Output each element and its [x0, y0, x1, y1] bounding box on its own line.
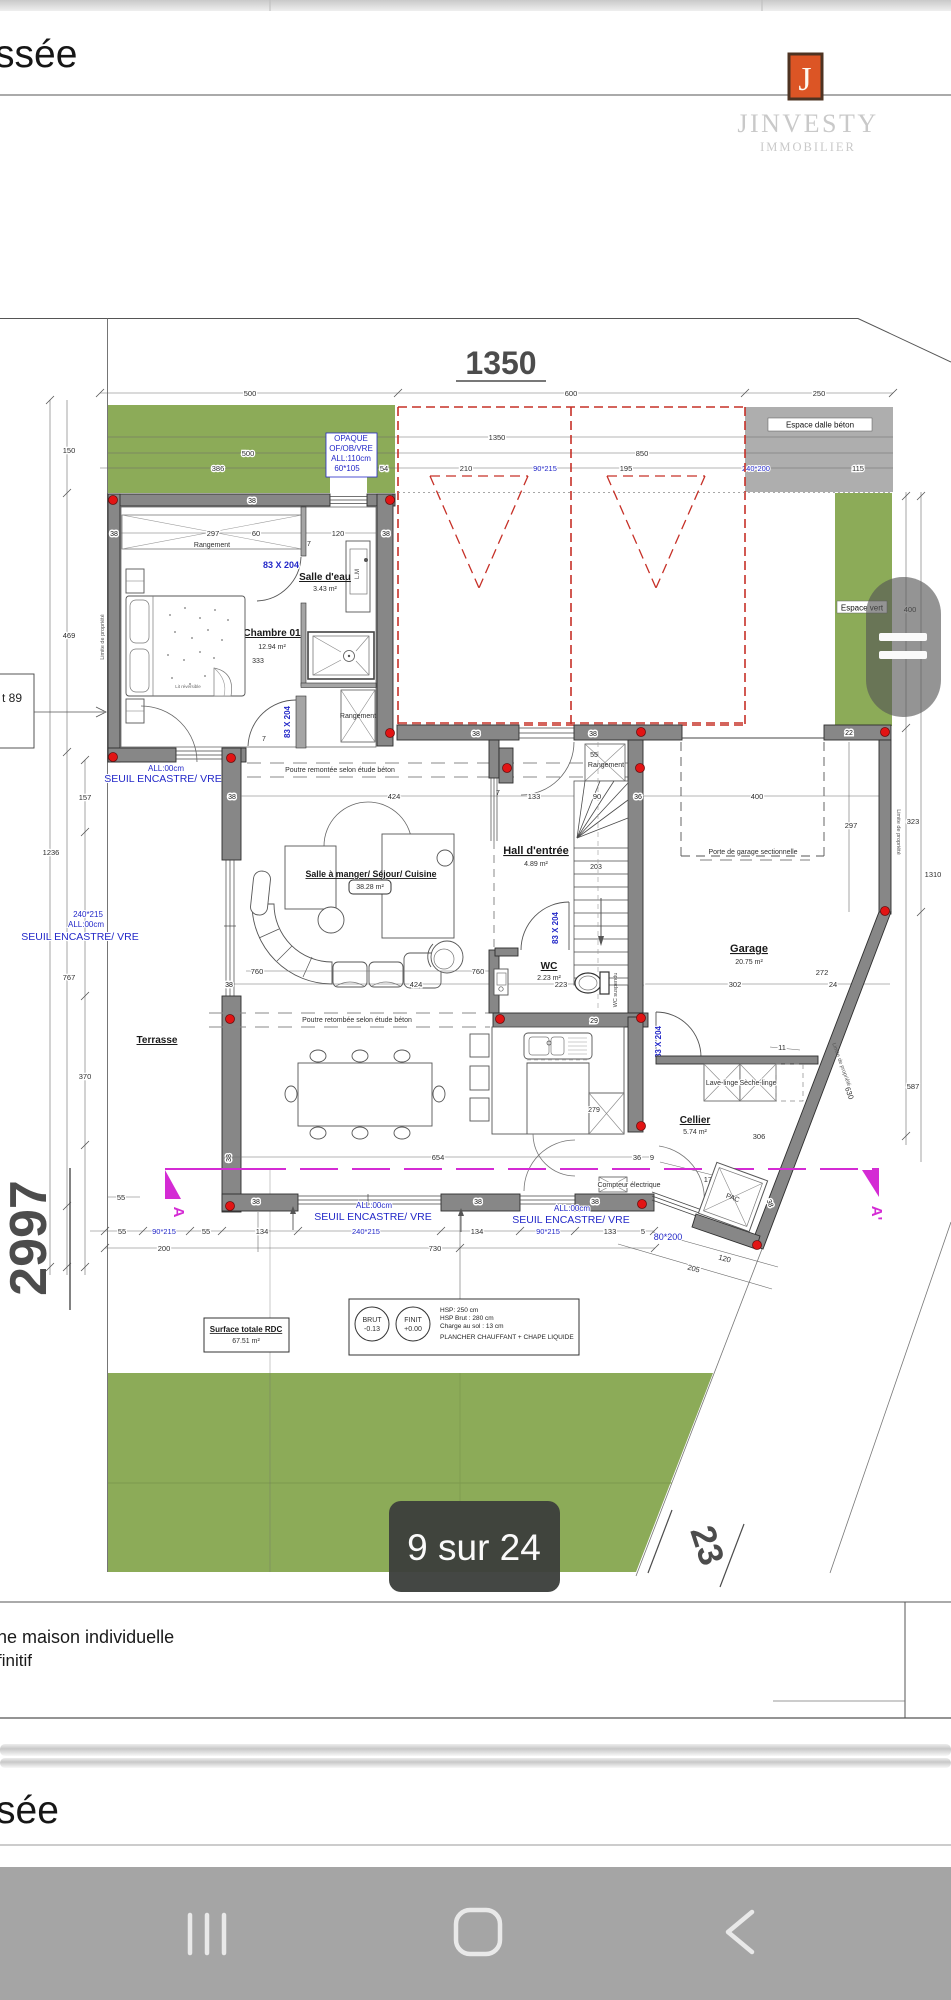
- svg-text:272: 272: [816, 968, 829, 977]
- svg-text:11: 11: [778, 1043, 786, 1052]
- svg-text:38: 38: [591, 1199, 599, 1206]
- svg-text:55: 55: [202, 1227, 210, 1236]
- svg-text:500: 500: [242, 449, 255, 458]
- svg-text:Poutre remontée selon étude bé: Poutre remontée selon étude béton: [285, 767, 395, 774]
- svg-text:157: 157: [79, 793, 92, 802]
- svg-text:115: 115: [852, 464, 864, 473]
- svg-text:500: 500: [244, 389, 257, 398]
- svg-text:Porte de garage sectionnelle: Porte de garage sectionnelle: [708, 849, 797, 856]
- svg-text:210: 210: [460, 464, 473, 473]
- svg-text:A: A: [170, 1207, 187, 1218]
- svg-text:370: 370: [79, 1072, 92, 1081]
- svg-text:29: 29: [590, 1018, 598, 1025]
- svg-text:5: 5: [641, 1227, 645, 1236]
- svg-text:7: 7: [307, 541, 311, 548]
- svg-text:ALL:00cm: ALL:00cm: [68, 920, 104, 929]
- svg-text:7: 7: [496, 790, 500, 797]
- svg-text:654: 654: [432, 1153, 445, 1162]
- svg-text:ALL:00cm: ALL:00cm: [554, 1204, 590, 1213]
- svg-text:83 X 204: 83 X 204: [654, 1025, 663, 1058]
- svg-text:PLANCHER CHAUFFANT + CHAPE LIQ: PLANCHER CHAUFFANT + CHAPE LIQUIDE: [440, 1334, 574, 1341]
- svg-text:83 X 204: 83 X 204: [283, 705, 292, 738]
- svg-text:Cellier: Cellier: [680, 1115, 711, 1126]
- svg-text:Sèche-linge: Sèche-linge: [740, 1080, 777, 1087]
- svg-text:90*215: 90*215: [533, 464, 557, 473]
- svg-text:767: 767: [63, 973, 76, 982]
- svg-text:ne maison individuelle: ne maison individuelle: [0, 1627, 174, 1647]
- svg-text:Rangement: Rangement: [588, 762, 624, 769]
- svg-text:240*200: 240*200: [742, 464, 770, 473]
- svg-text:38: 38: [110, 531, 118, 538]
- svg-text:7: 7: [262, 736, 266, 743]
- svg-text:38.28 m²: 38.28 m²: [356, 884, 384, 891]
- svg-text:finitif: finitif: [0, 1651, 32, 1670]
- svg-text:OPAQUE: OPAQUE: [334, 434, 368, 443]
- svg-text:Salle d'eau: Salle d'eau: [299, 572, 351, 583]
- svg-text:54: 54: [380, 464, 388, 473]
- svg-text:1236: 1236: [43, 848, 60, 857]
- svg-text:80*200: 80*200: [654, 1232, 683, 1242]
- svg-text:36: 36: [634, 794, 642, 801]
- svg-text:FINIT: FINIT: [404, 1317, 422, 1324]
- svg-text:297: 297: [845, 821, 858, 830]
- svg-text:90: 90: [593, 792, 601, 801]
- svg-text:302: 302: [729, 980, 742, 989]
- svg-text:55: 55: [590, 752, 598, 759]
- svg-text:Rangement: Rangement: [340, 713, 376, 720]
- svg-text:J: J: [798, 61, 811, 98]
- svg-text:Garage: Garage: [730, 943, 768, 955]
- svg-text:67.51 m²: 67.51 m²: [232, 1338, 260, 1345]
- svg-text:240*215: 240*215: [352, 1227, 380, 1236]
- svg-text:38: 38: [225, 982, 233, 989]
- svg-text:83 X 204: 83 X 204: [263, 560, 299, 570]
- svg-text:Limite de propriété: Limite de propriété: [895, 809, 901, 855]
- svg-text:IMMOBILIER: IMMOBILIER: [760, 140, 856, 154]
- svg-text:22: 22: [845, 730, 853, 737]
- svg-text:9: 9: [650, 1153, 654, 1162]
- svg-text:20.75 m²: 20.75 m²: [735, 959, 763, 966]
- svg-text:Salle à manger/ Séjour/ Cuisin: Salle à manger/ Séjour/ Cuisine: [305, 869, 436, 879]
- svg-text:150: 150: [63, 446, 76, 455]
- svg-text:Compteur électrique: Compteur électrique: [597, 1182, 660, 1189]
- svg-text:38: 38: [472, 731, 480, 738]
- svg-text:1310: 1310: [925, 870, 942, 879]
- svg-text:12.94 m²: 12.94 m²: [258, 644, 286, 651]
- svg-text:38: 38: [226, 1154, 233, 1162]
- svg-text:L.M: L.M: [355, 569, 361, 579]
- svg-text:ALL:110cm: ALL:110cm: [331, 454, 371, 463]
- svg-text:Lave-linge: Lave-linge: [706, 1080, 738, 1087]
- svg-text:1350: 1350: [489, 433, 506, 442]
- svg-text:38: 38: [589, 731, 597, 738]
- svg-text:SEUIL ENCASTRE/ VRE: SEUIL ENCASTRE/ VRE: [512, 1214, 629, 1226]
- svg-text:Rangement: Rangement: [194, 542, 230, 549]
- svg-text:90*215: 90*215: [152, 1227, 176, 1236]
- svg-text:333: 333: [252, 658, 264, 665]
- svg-text:469: 469: [63, 631, 76, 640]
- svg-text:OF/OB/VRE: OF/OB/VRE: [329, 444, 373, 453]
- svg-text:195: 195: [620, 464, 633, 473]
- svg-text:2997: 2997: [0, 1180, 58, 1296]
- svg-text:133: 133: [528, 792, 541, 801]
- svg-text:9 sur 24: 9 sur 24: [407, 1527, 541, 1568]
- svg-text:sée: sée: [0, 1789, 59, 1832]
- svg-text:203: 203: [590, 864, 602, 871]
- svg-text:5.74 m²: 5.74 m²: [683, 1129, 707, 1136]
- svg-text:-0.13: -0.13: [364, 1326, 380, 1333]
- svg-text:ssée: ssée: [0, 33, 77, 76]
- svg-text:Terrasse: Terrasse: [137, 1035, 178, 1046]
- svg-text:ALL:00cm: ALL:00cm: [148, 764, 184, 773]
- svg-text:60*105: 60*105: [334, 464, 360, 473]
- svg-text:133: 133: [604, 1227, 617, 1236]
- svg-text:BRUT: BRUT: [362, 1317, 382, 1324]
- svg-text:240*215: 240*215: [73, 910, 103, 919]
- svg-text:Chambre 01: Chambre 01: [243, 628, 301, 639]
- svg-text:120: 120: [332, 529, 345, 538]
- svg-text:424: 424: [388, 792, 401, 801]
- svg-text:1350: 1350: [465, 345, 536, 381]
- svg-text:760: 760: [251, 967, 264, 976]
- svg-text:134: 134: [256, 1227, 269, 1236]
- svg-text:SEUIL ENCASTRE/ VRE: SEUIL ENCASTRE/ VRE: [21, 931, 138, 943]
- svg-text:38: 38: [252, 1199, 260, 1206]
- svg-text:Surface totale RDC: Surface totale RDC: [210, 1325, 283, 1334]
- svg-text:587: 587: [907, 1082, 920, 1091]
- svg-text:386: 386: [212, 464, 225, 473]
- svg-text:850: 850: [636, 449, 649, 458]
- svg-text:55: 55: [117, 1193, 125, 1202]
- svg-text:24: 24: [829, 980, 837, 989]
- svg-text:ALL:00cm: ALL:00cm: [356, 1201, 392, 1210]
- svg-text:t 89: t 89: [2, 691, 22, 705]
- svg-text:60: 60: [252, 529, 260, 538]
- svg-text:Hall d'entrée: Hall d'entrée: [503, 845, 569, 857]
- svg-text:134: 134: [471, 1227, 484, 1236]
- svg-text:38: 38: [382, 531, 390, 538]
- svg-text:323: 323: [907, 817, 920, 826]
- svg-text:400: 400: [751, 792, 764, 801]
- svg-text:+0.00: +0.00: [404, 1326, 422, 1333]
- svg-text:38: 38: [228, 794, 236, 801]
- svg-text:Limite de propriété: Limite de propriété: [100, 614, 106, 660]
- svg-text:83 X 204: 83 X 204: [551, 911, 560, 944]
- svg-text:Lit réversible: Lit réversible: [175, 684, 201, 689]
- svg-text:SEUIL ENCASTRE/ VRE: SEUIL ENCASTRE/ VRE: [104, 773, 221, 785]
- svg-text:Espace dalle béton: Espace dalle béton: [786, 421, 854, 430]
- svg-text:2.23 m²: 2.23 m²: [537, 975, 561, 982]
- svg-text:36: 36: [633, 1153, 641, 1162]
- svg-text:600: 600: [565, 389, 578, 398]
- svg-text:HSP Brut : 280 cm: HSP Brut : 280 cm: [440, 1315, 494, 1322]
- svg-text:279: 279: [588, 1107, 600, 1114]
- svg-text:730: 730: [429, 1244, 442, 1253]
- svg-text:HSP: 250 cm: HSP: 250 cm: [440, 1307, 478, 1314]
- svg-text:200: 200: [158, 1244, 171, 1253]
- svg-text:3.43 m²: 3.43 m²: [313, 586, 337, 593]
- svg-text:Charge au sol : 13 cm: Charge au sol : 13 cm: [440, 1323, 504, 1330]
- svg-text:4.89 m²: 4.89 m²: [524, 861, 548, 868]
- svg-text:38: 38: [474, 1199, 482, 1206]
- svg-text:38: 38: [248, 498, 256, 505]
- svg-text:90*215: 90*215: [536, 1227, 560, 1236]
- svg-text:A': A': [868, 1206, 885, 1220]
- svg-text:55: 55: [118, 1227, 126, 1236]
- svg-text:SEUIL ENCASTRE/ VRE: SEUIL ENCASTRE/ VRE: [314, 1211, 431, 1223]
- svg-text:250: 250: [813, 389, 826, 398]
- svg-text:424: 424: [410, 980, 423, 989]
- svg-text:WC: WC: [541, 961, 558, 972]
- svg-text:306: 306: [753, 1132, 766, 1141]
- svg-text:Poutre retombée selon étude bé: Poutre retombée selon étude béton: [302, 1017, 412, 1024]
- svg-text:760: 760: [472, 967, 485, 976]
- svg-text:297: 297: [207, 529, 220, 538]
- svg-text:WC suspendu: WC suspendu: [613, 973, 619, 1008]
- svg-text:JINVESTY: JINVESTY: [737, 109, 878, 138]
